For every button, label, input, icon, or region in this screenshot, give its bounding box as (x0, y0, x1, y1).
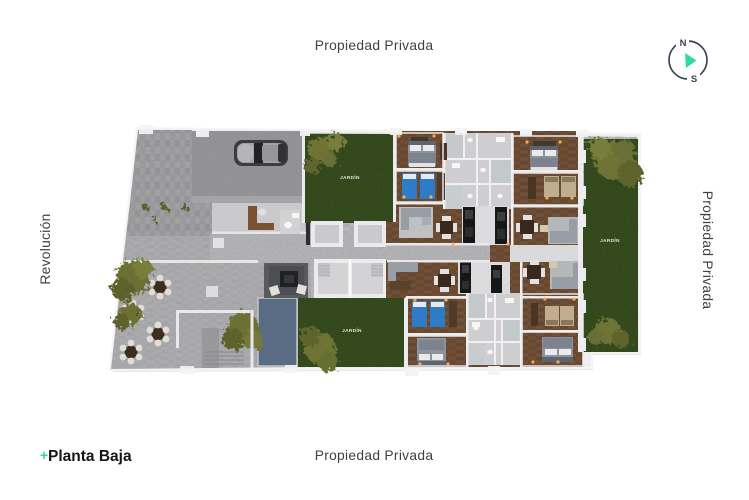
svg-text:Propiedad Privada: Propiedad Privada (700, 191, 715, 310)
svg-text:Propiedad Privada: Propiedad Privada (315, 38, 434, 53)
svg-text:N: N (680, 38, 687, 49)
svg-text:Propiedad Privada: Propiedad Privada (315, 448, 434, 463)
svg-text:Revolución: Revolución (38, 213, 53, 284)
svg-text:S: S (691, 74, 697, 85)
svg-text:Planta Baja: Planta Baja (48, 448, 132, 465)
svg-text:+: + (40, 447, 48, 463)
